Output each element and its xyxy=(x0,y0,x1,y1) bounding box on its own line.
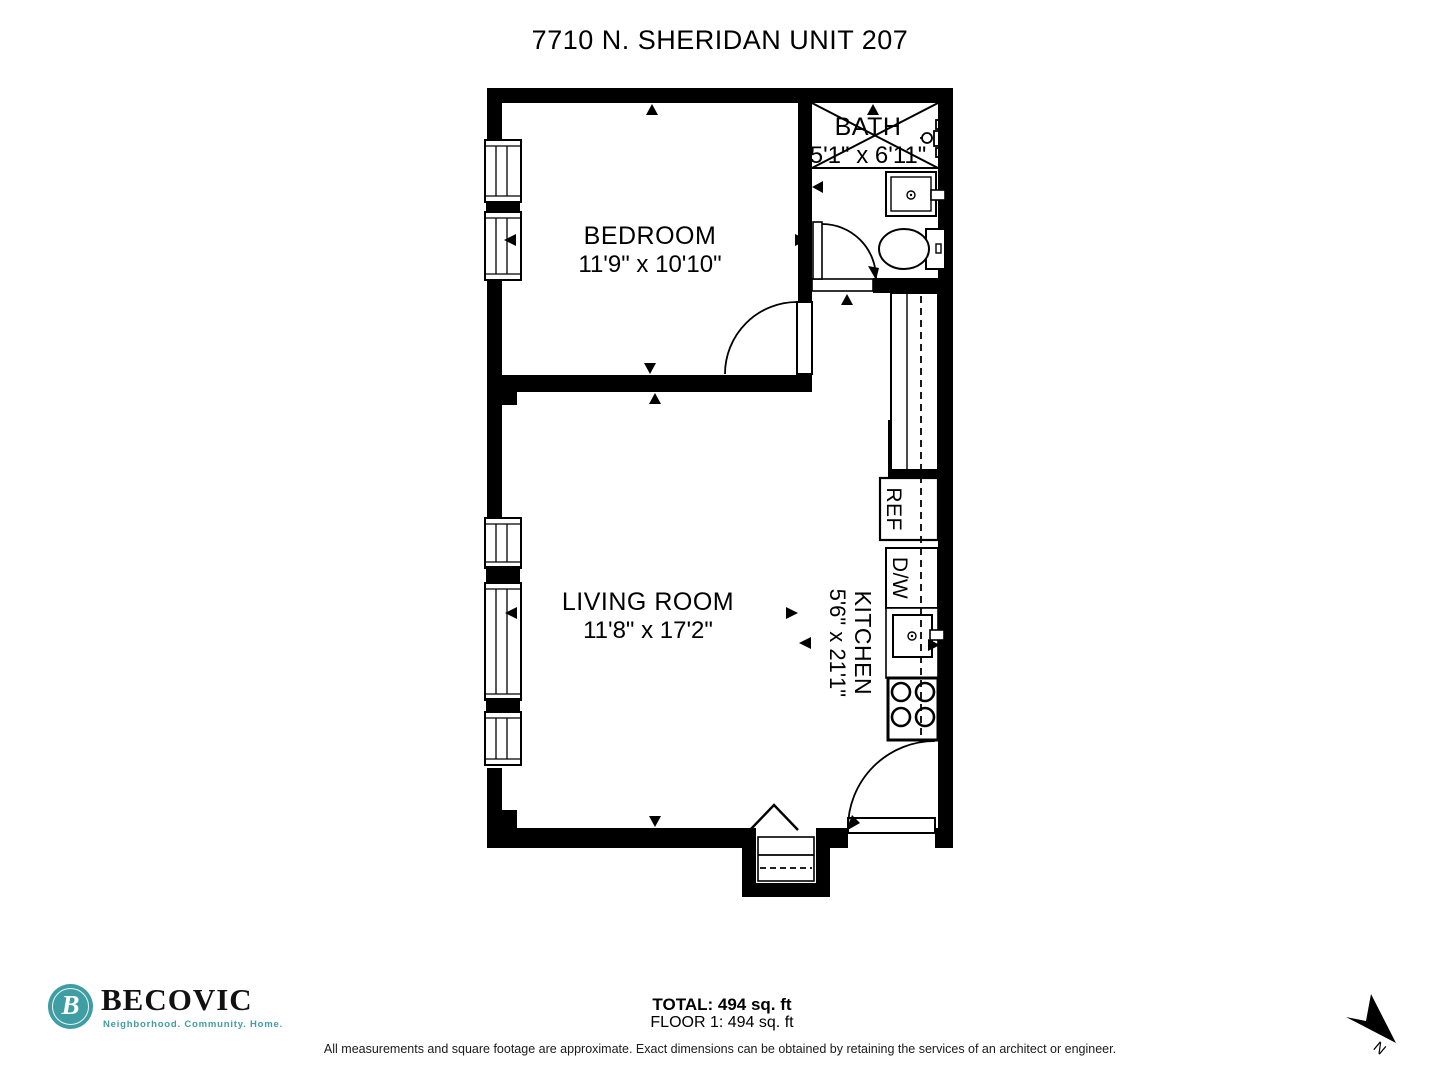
bedroom-label: BEDROOM 11'9" x 10'10" xyxy=(500,222,800,278)
kitchen-upper-counter xyxy=(891,293,938,470)
kitchen-dims: 5'6" x 21'1" xyxy=(824,553,849,733)
stove xyxy=(888,678,938,740)
wall-bottom-corner xyxy=(935,828,953,848)
north-arrow-icon xyxy=(1346,994,1396,1043)
floorplan-drawing xyxy=(0,0,1440,1080)
wall-right xyxy=(938,88,953,848)
entry-door-leaf xyxy=(848,818,935,833)
entry-door-arc xyxy=(848,741,935,828)
bath-dims: 5'1" x 6'11" xyxy=(788,142,948,170)
bedroom-name: BEDROOM xyxy=(500,222,800,251)
dishwasher-label: D/W xyxy=(887,538,911,618)
living-room-label: LIVING ROOM 11'8" x 17'2" xyxy=(498,588,798,644)
bedroom-dims: 11'9" x 10'10" xyxy=(500,251,800,279)
wall-bottom-left xyxy=(487,828,745,848)
wall-kitchen-band xyxy=(902,470,938,478)
wall-bedroom-living-divider xyxy=(487,375,812,392)
bath-door-arrow xyxy=(868,266,879,280)
disclaimer-text: All measurements and square footage are … xyxy=(220,1042,1220,1056)
living-room-name: LIVING ROOM xyxy=(498,588,798,617)
wall-vestibule-bottom xyxy=(742,883,830,897)
page-title: 7710 N. SHERIDAN UNIT 207 xyxy=(320,25,1120,56)
wall-left-upper xyxy=(487,88,502,140)
floor-area-text: FLOOR 1: 494 sq. ft xyxy=(322,1014,1122,1032)
bath-name: BATH xyxy=(788,113,948,142)
bath-door xyxy=(812,222,879,291)
bath-sink xyxy=(886,172,945,216)
total-area-text: TOTAL: 494 sq. ft xyxy=(322,995,1122,1015)
logo-company-name: BECOVIC xyxy=(101,984,283,1015)
becovic-logo: B BECOVIC Neighborhood. Community. Home. xyxy=(48,984,283,1030)
toilet xyxy=(879,229,945,269)
wall-left-step-upper xyxy=(487,392,517,405)
refrigerator-label: REF xyxy=(881,469,905,549)
kitchen-label: KITCHEN 5'6" x 21'1" xyxy=(824,553,876,733)
kitchen-name: KITCHEN xyxy=(849,553,875,733)
logo-monogram-icon: B xyxy=(48,984,93,1029)
wall-bottom-pier xyxy=(830,828,848,848)
living-room-dims: 11'8" x 17'2" xyxy=(498,617,798,645)
wall-top xyxy=(487,88,953,103)
logo-tagline: Neighborhood. Community. Home. xyxy=(103,1019,283,1030)
entry-chevron xyxy=(750,805,798,830)
floorplan-page: 7710 N. SHERIDAN UNIT 207 BEDROOM 11'9" … xyxy=(0,0,1440,1080)
vestibule-inset xyxy=(758,837,814,881)
bedroom-door xyxy=(725,302,812,374)
wall-left-step-lower xyxy=(487,810,517,830)
bath-label: BATH 5'1" x 6'11" xyxy=(788,113,948,169)
entry xyxy=(750,741,935,881)
wall-bath-bottom xyxy=(873,278,953,293)
logo-monogram-letter: B xyxy=(61,990,79,1021)
